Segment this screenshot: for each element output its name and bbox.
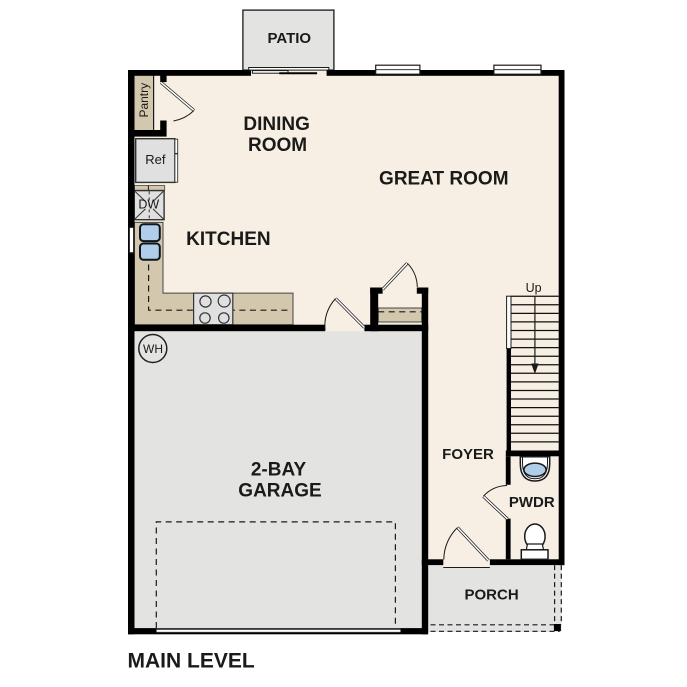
svg-text:DW: DW <box>138 198 159 212</box>
svg-text:Ref: Ref <box>145 152 166 167</box>
svg-text:WH: WH <box>143 342 163 356</box>
svg-text:Up: Up <box>526 281 542 295</box>
svg-text:PORCH: PORCH <box>465 586 519 603</box>
svg-text:Pantry: Pantry <box>137 83 151 118</box>
svg-text:KITCHEN: KITCHEN <box>186 229 270 250</box>
svg-text:PWDR: PWDR <box>509 494 555 511</box>
svg-text:GREAT ROOM: GREAT ROOM <box>379 169 508 190</box>
svg-text:MAIN LEVEL: MAIN LEVEL <box>128 650 255 673</box>
svg-text:ROOM: ROOM <box>248 135 307 156</box>
svg-text:DINING: DINING <box>243 114 310 135</box>
svg-text:2-BAY: 2-BAY <box>251 460 307 481</box>
svg-text:GARAGE: GARAGE <box>238 480 321 501</box>
svg-text:PATIO: PATIO <box>267 30 311 47</box>
svg-text:FOYER: FOYER <box>442 446 494 463</box>
